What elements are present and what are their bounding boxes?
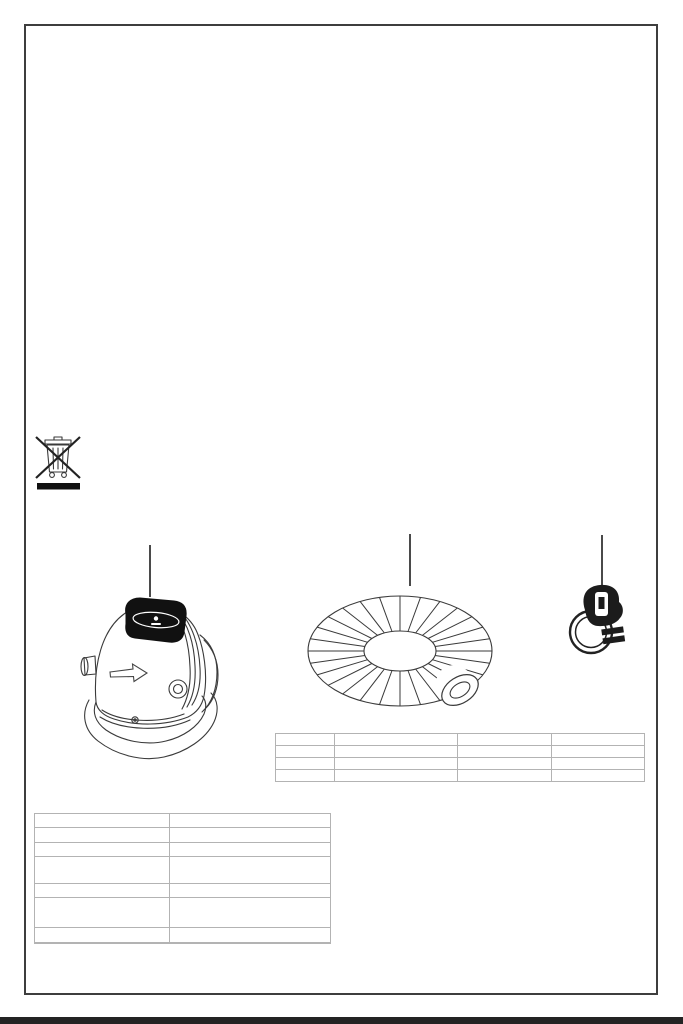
table-row	[35, 814, 331, 828]
table-cell	[335, 758, 458, 770]
table-cell	[335, 770, 458, 782]
table-row	[35, 943, 331, 944]
table-row	[276, 746, 645, 758]
table-cell	[35, 884, 170, 898]
table-cell	[276, 758, 335, 770]
bottom-edge-bar	[0, 1017, 683, 1024]
table-cell	[458, 746, 552, 758]
air-pump-illustration	[80, 590, 220, 765]
table-cell	[458, 758, 552, 770]
table-row	[35, 898, 331, 928]
table-row	[276, 770, 645, 782]
pump-label-logo	[154, 616, 158, 620]
table-cell	[335, 734, 458, 746]
clamp-latch-bars	[601, 626, 625, 644]
table-cell	[552, 770, 645, 782]
table-cell	[35, 843, 170, 857]
table-cell	[170, 928, 331, 943]
spec-table	[34, 813, 331, 944]
table-cell	[35, 814, 170, 828]
table-cell	[170, 943, 331, 944]
airflow-arrow-icon	[110, 664, 147, 682]
table-cell	[552, 758, 645, 770]
hose-figure	[302, 580, 502, 725]
pump-figure	[80, 590, 220, 770]
parts-table	[275, 733, 645, 782]
table-cell	[35, 828, 170, 843]
corrugated-hose-illustration	[302, 580, 502, 720]
table-cell	[170, 843, 331, 857]
table-cell	[335, 746, 458, 758]
table-cell	[552, 734, 645, 746]
table-row	[35, 857, 331, 884]
table-row	[35, 828, 331, 843]
table-row	[35, 884, 331, 898]
table-cell	[170, 857, 331, 884]
hose-clamp-illustration	[560, 582, 632, 664]
table-cell	[276, 734, 335, 746]
table-cell	[35, 857, 170, 884]
table-row	[276, 734, 645, 746]
table-cell	[458, 770, 552, 782]
document-page	[0, 0, 683, 1024]
weee-icon	[32, 433, 84, 496]
table-cell	[552, 746, 645, 758]
table-cell	[35, 898, 170, 928]
table-cell	[170, 884, 331, 898]
table-row	[276, 758, 645, 770]
table-row	[35, 928, 331, 943]
table-cell	[276, 770, 335, 782]
table-cell	[170, 814, 331, 828]
table-row	[35, 843, 331, 857]
table-cell	[35, 928, 170, 943]
hose-callout-line	[409, 534, 411, 586]
table-cell	[276, 746, 335, 758]
clamp-figure	[560, 582, 632, 669]
clamp-callout-line	[601, 535, 603, 587]
table-cell	[458, 734, 552, 746]
table-cell	[170, 828, 331, 843]
table-cell	[170, 898, 331, 928]
table-cell	[35, 943, 170, 944]
weee-bar	[37, 483, 80, 490]
